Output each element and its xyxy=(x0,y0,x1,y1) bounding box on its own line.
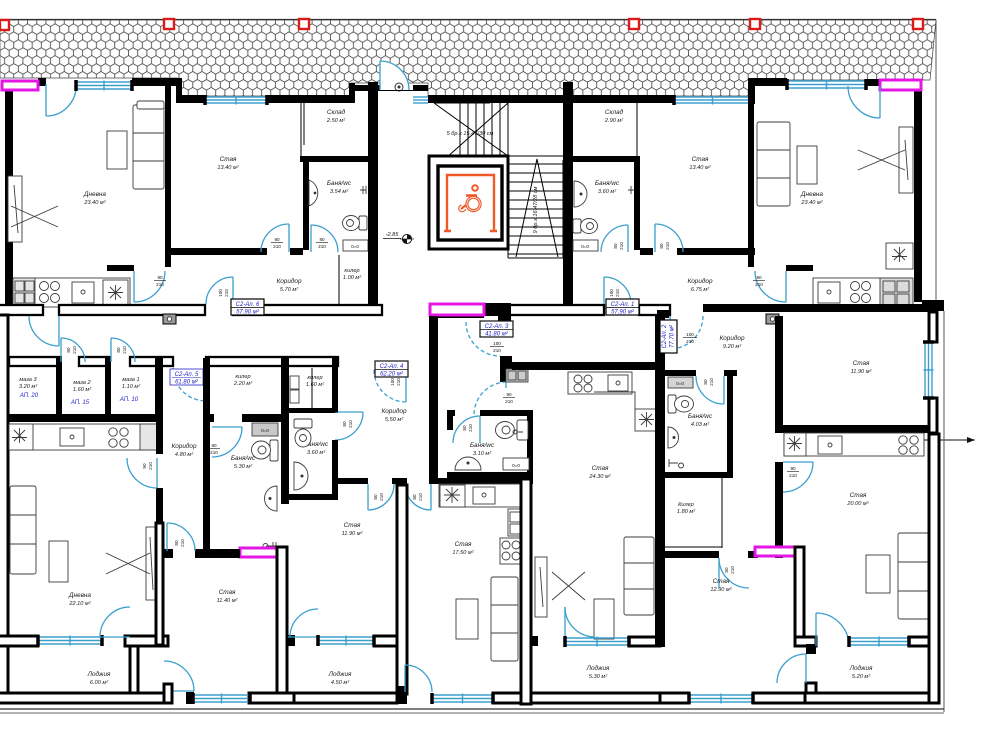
svg-text:80: 80 xyxy=(319,237,325,242)
svg-text:Стая: Стая xyxy=(455,541,472,548)
svg-text:80: 80 xyxy=(412,494,417,500)
svg-text:6.75 м²: 6.75 м² xyxy=(691,287,710,293)
svg-text:210: 210 xyxy=(348,420,353,428)
svg-text:210: 210 xyxy=(180,539,185,547)
svg-text:80: 80 xyxy=(66,347,71,353)
svg-text:5.50 м²: 5.50 м² xyxy=(385,417,404,423)
svg-text:Дневна: Дневна xyxy=(800,191,823,198)
svg-text:22.10 м²: 22.10 м² xyxy=(68,601,91,607)
svg-text:6.00 м²: 6.00 м² xyxy=(90,680,109,686)
svg-text:C2-Ап. 5: C2-Ап. 5 xyxy=(175,372,199,378)
svg-text:Баня/wc: Баня/wc xyxy=(327,180,352,187)
svg-text:Дневна: Дневна xyxy=(83,191,106,198)
svg-text:Стая: Стая xyxy=(219,589,236,596)
svg-text:210: 210 xyxy=(505,399,513,404)
svg-text:210: 210 xyxy=(122,346,127,354)
svg-text:2.20 м²: 2.20 м² xyxy=(233,381,253,387)
svg-text:АП. 10: АП. 10 xyxy=(119,397,139,403)
svg-text:Коридор: Коридор xyxy=(687,277,713,285)
svg-text:маза 1: маза 1 xyxy=(122,377,139,383)
svg-text:Склад: Склад xyxy=(327,108,346,116)
svg-text:11.40 м²: 11.40 м² xyxy=(217,598,239,604)
svg-text:9.20 м²: 9.20 м² xyxy=(723,344,742,350)
svg-text:210: 210 xyxy=(686,339,694,344)
svg-text:Стая: Стая xyxy=(592,465,609,472)
svg-text:41.80 м²: 41.80 м² xyxy=(485,332,509,338)
svg-text:3.60 м²: 3.60 м² xyxy=(598,189,617,195)
svg-text:Стая: Стая xyxy=(853,360,870,367)
svg-text:3.54 м²: 3.54 м² xyxy=(330,189,349,195)
svg-text:100: 100 xyxy=(218,289,223,297)
svg-text:210: 210 xyxy=(619,242,624,250)
svg-text:Баня/wc: Баня/wc xyxy=(231,455,256,462)
svg-text:13.40 м²: 13.40 м² xyxy=(689,165,711,171)
svg-text:80: 80 xyxy=(703,379,708,385)
svg-text:80: 80 xyxy=(724,567,729,573)
svg-text:210: 210 xyxy=(210,450,218,455)
svg-text:Баня/wc: Баня/wc xyxy=(470,442,495,449)
svg-text:210: 210 xyxy=(379,493,384,501)
svg-text:4.50 м²: 4.50 м² xyxy=(331,680,350,686)
svg-text:210: 210 xyxy=(156,282,164,287)
svg-text:210: 210 xyxy=(418,493,423,501)
svg-text:5.70 м²: 5.70 м² xyxy=(280,287,299,293)
svg-text:80: 80 xyxy=(174,540,179,546)
svg-text:90: 90 xyxy=(157,275,163,280)
svg-text:5 бр.x 15.47/30 см: 5 бр.x 15.47/30 см xyxy=(447,131,494,137)
svg-text:90: 90 xyxy=(142,463,147,469)
svg-text:Коридор: Коридор xyxy=(171,442,197,450)
svg-text:4.03 м²: 4.03 м² xyxy=(691,422,710,428)
svg-text:1.60 м²: 1.60 м² xyxy=(73,387,92,393)
svg-text:210: 210 xyxy=(615,289,620,297)
svg-text:57.90 м²: 57.90 м² xyxy=(611,310,635,316)
svg-text:0=0: 0=0 xyxy=(512,463,520,468)
svg-text:3.20 м²: 3.20 м² xyxy=(19,384,38,390)
svg-text:3.10 м²: 3.10 м² xyxy=(473,451,492,457)
svg-text:килер: килер xyxy=(307,375,322,381)
svg-text:62.20 м²: 62.20 м² xyxy=(380,372,404,378)
svg-text:80: 80 xyxy=(116,347,121,353)
svg-text:Килер: Килер xyxy=(678,502,694,508)
svg-text:210: 210 xyxy=(709,378,714,386)
svg-text:23.40 м²: 23.40 м² xyxy=(83,200,106,206)
svg-text:3.60 м²: 3.60 м² xyxy=(307,450,326,456)
svg-text:100: 100 xyxy=(390,378,395,386)
svg-text:24.30 м²: 24.30 м² xyxy=(588,474,611,480)
svg-text:Стая: Стая xyxy=(692,156,709,163)
svg-text:17.50 м²: 17.50 м² xyxy=(452,550,474,556)
svg-text:80: 80 xyxy=(342,421,347,427)
svg-text:90: 90 xyxy=(506,392,512,397)
svg-text:0=0: 0=0 xyxy=(676,381,684,386)
svg-text:Склад: Склад xyxy=(605,108,624,116)
svg-text:килер: килер xyxy=(235,374,250,380)
svg-text:Баня/wc: Баня/wc xyxy=(595,180,620,187)
svg-text:килер: килер xyxy=(344,268,359,274)
svg-text:80: 80 xyxy=(613,243,618,249)
svg-text:1.10 м²: 1.10 м² xyxy=(122,384,141,390)
svg-text:Лоджия: Лоджия xyxy=(328,670,352,678)
svg-text:Стая: Стая xyxy=(344,522,361,529)
svg-text:2.90 м²: 2.90 м² xyxy=(604,118,624,124)
svg-text:210: 210 xyxy=(665,242,670,250)
svg-text:210: 210 xyxy=(730,566,735,574)
svg-text:90: 90 xyxy=(790,466,796,471)
svg-text:210: 210 xyxy=(755,282,763,287)
svg-text:0=0: 0=0 xyxy=(261,428,269,433)
svg-text:80: 80 xyxy=(659,243,664,249)
svg-text:Дневна: Дневна xyxy=(68,592,91,599)
svg-text:0=0: 0=0 xyxy=(351,244,359,249)
svg-text:100: 100 xyxy=(686,332,694,337)
svg-text:210: 210 xyxy=(396,378,401,386)
svg-text:80: 80 xyxy=(274,237,280,242)
svg-text:Стая: Стая xyxy=(850,492,867,499)
svg-text:100: 100 xyxy=(493,341,501,346)
svg-text:1.80 м²: 1.80 м² xyxy=(677,509,696,515)
svg-text:C2-Ап. 2: C2-Ап. 2 xyxy=(662,324,668,348)
svg-text:Коридор: Коридор xyxy=(276,277,302,285)
svg-text:77.70 м²: 77.70 м² xyxy=(670,324,676,348)
svg-text:210: 210 xyxy=(72,346,77,354)
svg-text:210: 210 xyxy=(148,462,153,470)
svg-text:100: 100 xyxy=(609,289,614,297)
svg-text:80: 80 xyxy=(462,425,467,431)
svg-text:80: 80 xyxy=(211,443,217,448)
svg-text:0=0: 0=0 xyxy=(581,244,589,249)
svg-text:12.90 м²: 12.90 м² xyxy=(710,587,732,593)
svg-text:11.90 м²: 11.90 м² xyxy=(851,369,873,375)
svg-text:13.40 м²: 13.40 м² xyxy=(217,165,239,171)
svg-text:57.90 м²: 57.90 м² xyxy=(236,310,260,316)
svg-text:4.80 м²: 4.80 м² xyxy=(175,452,194,458)
svg-text:9 бр.x 16.47/28 см: 9 бр.x 16.47/28 см xyxy=(533,186,539,233)
svg-text:210: 210 xyxy=(224,289,229,297)
svg-text:-2.85: -2.85 xyxy=(386,232,400,238)
svg-text:маза 3: маза 3 xyxy=(19,377,37,383)
svg-text:210: 210 xyxy=(468,424,473,432)
svg-text:Коридор: Коридор xyxy=(381,407,407,415)
svg-text:Баня/wc: Баня/wc xyxy=(688,413,713,420)
svg-text:Коридор: Коридор xyxy=(719,334,745,342)
svg-text:5.30 м²: 5.30 м² xyxy=(234,464,253,470)
svg-text:Лоджия: Лоджия xyxy=(586,664,610,672)
svg-text:АП. 20: АП. 20 xyxy=(19,393,39,399)
svg-text:11.90 м²: 11.90 м² xyxy=(342,531,364,537)
svg-text:Стая: Стая xyxy=(220,156,237,163)
svg-text:1.00 м²: 1.00 м² xyxy=(343,275,362,281)
svg-text:210: 210 xyxy=(789,473,797,478)
svg-text:2.50 м²: 2.50 м² xyxy=(326,118,346,124)
svg-text:Лоджия: Лоджия xyxy=(849,664,873,672)
svg-text:210: 210 xyxy=(318,244,326,249)
svg-text:20.00 м²: 20.00 м² xyxy=(846,501,869,507)
svg-text:23.40 м²: 23.40 м² xyxy=(800,200,823,206)
svg-text:210: 210 xyxy=(273,244,281,249)
svg-text:90: 90 xyxy=(756,275,762,280)
svg-text:маза 2: маза 2 xyxy=(73,380,91,386)
svg-text:80: 80 xyxy=(373,494,378,500)
svg-text:АП. 15: АП. 15 xyxy=(70,400,90,406)
svg-text:Лоджия: Лоджия xyxy=(87,670,111,678)
svg-text:61.80 м²: 61.80 м² xyxy=(175,380,199,386)
svg-text:5.20 м²: 5.20 м² xyxy=(852,674,871,680)
svg-text:210: 210 xyxy=(493,348,501,353)
svg-text:Стая: Стая xyxy=(713,578,730,585)
svg-text:5.30 м²: 5.30 м² xyxy=(589,674,608,680)
svg-text:1.60 м²: 1.60 м² xyxy=(306,382,325,388)
